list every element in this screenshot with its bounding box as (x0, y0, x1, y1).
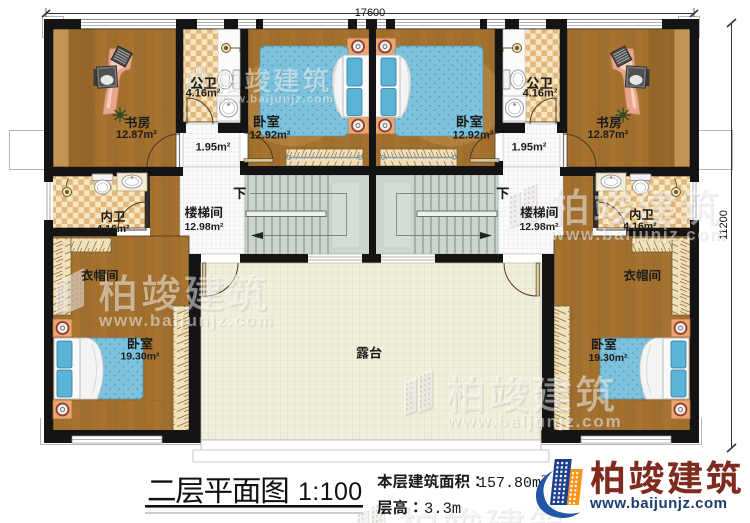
svg-text:4.16m²: 4.16m² (96, 223, 130, 235)
svg-text:1:100: 1:100 (298, 478, 363, 506)
svg-text:12.92m²: 12.92m² (453, 130, 494, 142)
svg-text:12.98m²: 12.98m² (519, 221, 559, 233)
svg-text:12.87m²: 12.87m² (588, 129, 629, 141)
svg-text:www.baijunjz.com: www.baijunjz.com (215, 94, 334, 106)
svg-text:3.3m: 3.3m (424, 500, 461, 518)
svg-text:19.30m²: 19.30m² (588, 352, 628, 364)
svg-text:4.16m²: 4.16m² (623, 221, 657, 233)
svg-text:12.87m²: 12.87m² (116, 129, 157, 141)
svg-text:157.80m2: 157.80m2 (478, 474, 546, 492)
svg-text:1.95m²: 1.95m² (512, 142, 547, 154)
svg-text:12.92m²: 12.92m² (250, 130, 291, 142)
svg-text:4.16m²: 4.16m² (523, 88, 558, 100)
svg-text:www.baijunjz.com: www.baijunjz.com (446, 412, 623, 431)
svg-text:12.98m²: 12.98m² (184, 221, 224, 233)
svg-text:www.baijunjz.com: www.baijunjz.com (589, 495, 727, 512)
svg-text:19.30m²: 19.30m² (120, 351, 160, 363)
svg-text:17600: 17600 (355, 7, 386, 19)
svg-text:1.95m²: 1.95m² (196, 142, 231, 154)
svg-text:4.16m²: 4.16m² (186, 88, 221, 100)
svg-text:www.baijunjz.com: www.baijunjz.com (98, 311, 275, 330)
